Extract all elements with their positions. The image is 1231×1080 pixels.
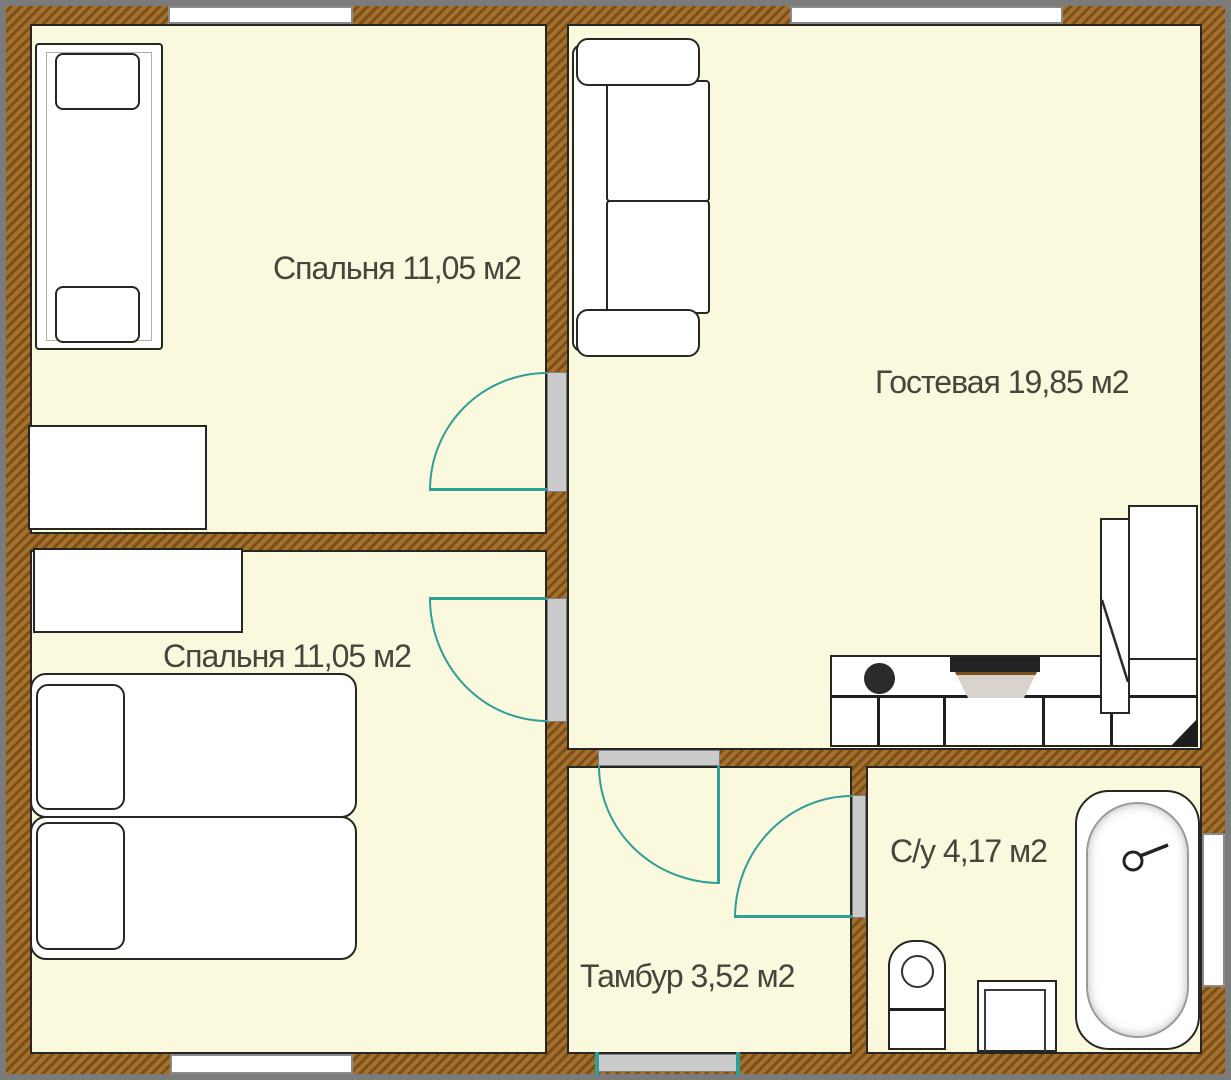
window-top-left <box>168 6 353 24</box>
door-opening-bathroom <box>852 795 866 918</box>
door-leaf-bathroom <box>734 915 852 918</box>
label-guest-room: Гостевая 19,85 м2 <box>875 364 1129 401</box>
double-bed-pillow-top <box>36 684 125 810</box>
fridge-tall-cabinet <box>1128 505 1198 660</box>
sofa-seat-bottom <box>606 200 710 314</box>
door-opening-bedroom-bottom <box>547 598 567 722</box>
dresser <box>33 548 243 633</box>
window-top-right <box>790 6 1063 24</box>
window-bottom-left <box>170 1054 353 1074</box>
single-bed-pillow-foot <box>55 286 140 343</box>
label-bathroom: С/у 4,17 м2 <box>890 833 1047 870</box>
entrance-door-jamb-left <box>595 1052 599 1076</box>
double-bed-pillow-bottom <box>36 822 125 950</box>
single-bed-pillow-head <box>55 53 140 110</box>
kitchen-divider-2 <box>943 697 946 745</box>
door-opening-bedroom-top <box>547 372 567 492</box>
stove-oven-door <box>955 672 1037 698</box>
floor-plan: Спальня 11,05 м2 Гостевая 19,85 м2 Спаль… <box>0 0 1231 1080</box>
sofa-seat-top <box>606 80 710 202</box>
label-vestibule: Тамбур 3,52 м2 <box>580 958 794 995</box>
kitchen-divider-1 <box>877 697 880 745</box>
door-leaf-vestibule <box>717 766 720 884</box>
toilet-tank-line <box>890 1008 944 1011</box>
window-right-bathroom <box>1202 833 1225 987</box>
kitchen-sink <box>864 663 895 694</box>
desk <box>28 425 207 530</box>
fridge-open-door-panel <box>1100 518 1130 714</box>
door-leaf-bedroom-top <box>429 488 547 491</box>
label-bedroom-bottom: Спальня 11,05 м2 <box>163 638 411 675</box>
washing-machine-inner <box>984 989 1046 1052</box>
stove-control-panel <box>950 657 1040 672</box>
door-leaf-bedroom-bottom <box>429 597 547 600</box>
door-opening-vestibule <box>598 750 720 766</box>
kitchen-divider-3 <box>1042 697 1045 745</box>
toilet-bowl <box>901 955 934 988</box>
bathtub-basin <box>1086 802 1189 1038</box>
sofa-armrest-bottom <box>576 309 700 357</box>
entrance-door-jamb-right <box>736 1052 740 1076</box>
sofa-armrest-top <box>576 38 700 86</box>
label-bedroom-top: Спальня 11,05 м2 <box>273 250 521 287</box>
entrance-door <box>598 1054 737 1072</box>
